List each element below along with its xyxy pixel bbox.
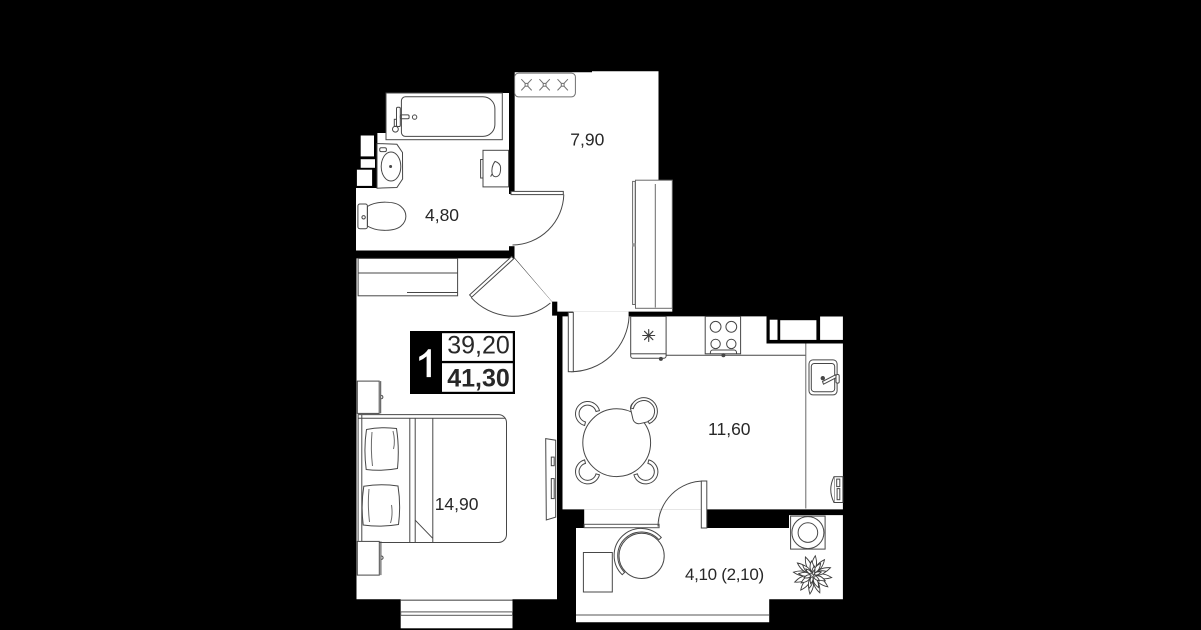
svg-text:7,90: 7,90 [570, 129, 604, 149]
svg-text:41,30: 41,30 [447, 365, 510, 393]
svg-text:4,80: 4,80 [425, 205, 459, 225]
svg-text:4,10 (2,10): 4,10 (2,10) [685, 565, 764, 584]
svg-text:11,60: 11,60 [708, 419, 751, 439]
svg-text:14,90: 14,90 [435, 494, 479, 514]
svg-text:39,20: 39,20 [447, 332, 510, 360]
